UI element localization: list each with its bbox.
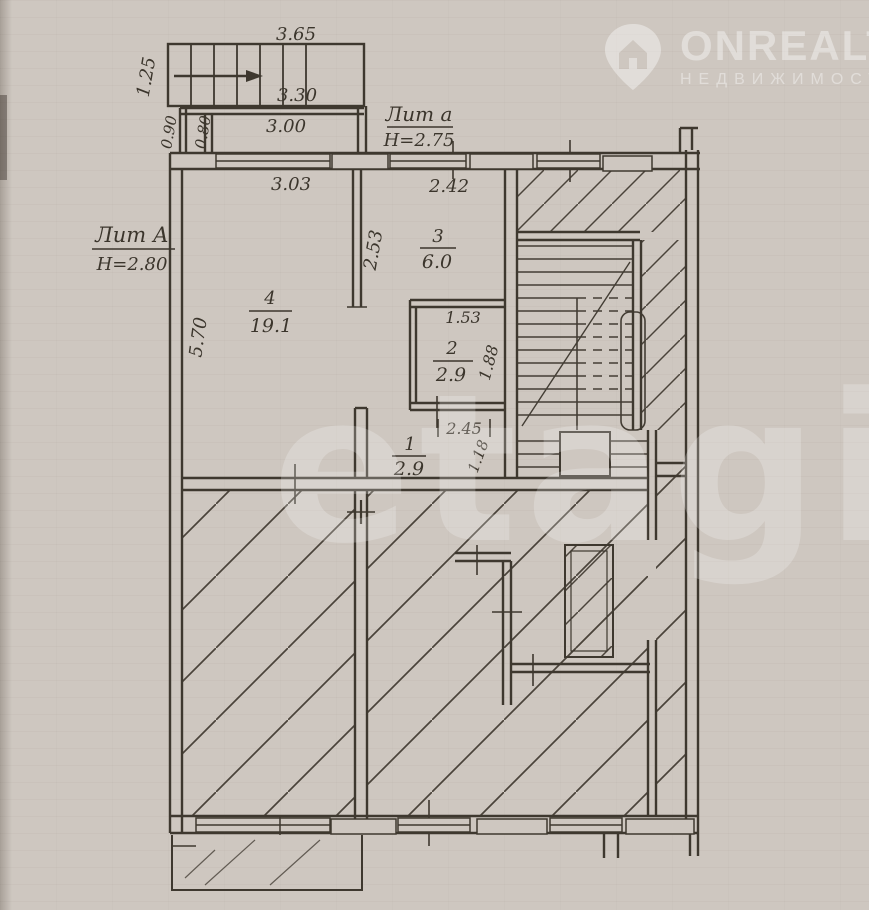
floor-plan-drawing: 3.65 1.25 3.30 3.00 0.90 0.80 Лит а Н=2.… <box>0 0 869 910</box>
plan-labels: 3.65 1.25 3.30 3.00 0.90 0.80 Лит а Н=2.… <box>92 24 502 480</box>
room4-number: 4 <box>263 288 275 309</box>
hatched-shaft-box <box>565 545 613 657</box>
litera-main-label: Лит А <box>94 223 169 247</box>
stair-lower-landing-box <box>560 432 610 476</box>
bottom-wall-windows <box>196 815 694 835</box>
hatched-room-bottom-left <box>182 490 355 816</box>
dim-room4-window: 3.03 <box>271 174 311 195</box>
dim-porch-width: 3.65 <box>276 24 316 45</box>
dim-room3-window: 2.42 <box>428 176 469 197</box>
dim-hall-width: 2.45 <box>445 419 482 438</box>
scan-edge-shadow <box>0 95 7 180</box>
litera-annex-label: Лит а <box>385 102 453 126</box>
dim-annex-inner-width: 3.00 <box>266 116 306 137</box>
room2-number: 2 <box>445 338 457 359</box>
balcony-hatch <box>185 840 320 885</box>
dim-porch-depth: 1.25 <box>133 55 161 98</box>
dim-hall-depth: 1.18 <box>464 438 492 476</box>
dim-room4-depth: 5.70 <box>185 316 211 359</box>
room2-area: 2.9 <box>435 364 466 386</box>
top-wall-windows <box>216 154 652 171</box>
hatched-stair-side <box>641 240 686 430</box>
dim-annex-width: 3.30 <box>277 85 317 106</box>
dim-closet-depth: 1.88 <box>475 343 503 382</box>
room3-area: 6.0 <box>422 251 452 273</box>
dim-annex-left-outer: 0.90 <box>157 114 181 150</box>
room1-number: 1 <box>404 434 415 455</box>
litera-annex-height: Н=2.75 <box>383 130 455 151</box>
room1-area: 2.9 <box>393 458 424 480</box>
litera-main-height: Н=2.80 <box>96 254 168 275</box>
hatched-strip-bottom-right <box>656 463 686 816</box>
room3-number: 3 <box>432 226 443 247</box>
hatched-stair-landing-top <box>517 169 686 232</box>
scanned-floor-plan-page: 3.65 1.25 3.30 3.00 0.90 0.80 Лит а Н=2.… <box>0 0 869 910</box>
room4-area: 19.1 <box>250 315 292 337</box>
dim-closet-width: 1.53 <box>445 308 481 327</box>
balcony <box>172 835 362 890</box>
dim-room3-depth: 2.53 <box>360 228 388 272</box>
